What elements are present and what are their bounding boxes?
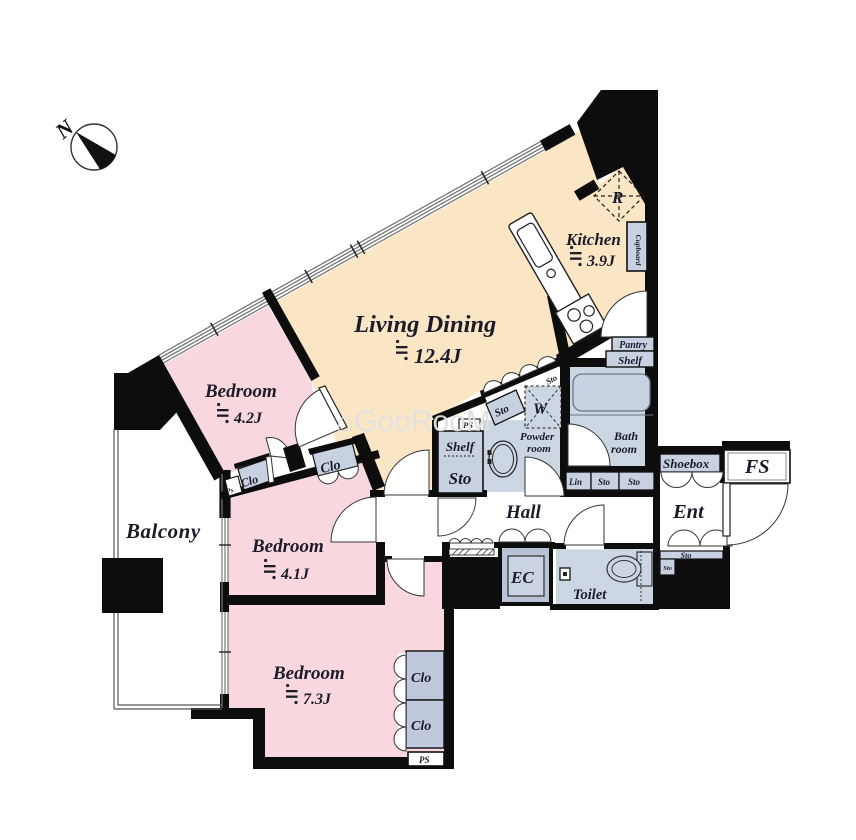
svg-text:Sto: Sto	[598, 477, 611, 487]
svg-text:Shelf: Shelf	[618, 355, 643, 367]
svg-text:Lin: Lin	[568, 477, 582, 487]
svg-text:EC: EC	[510, 568, 534, 587]
svg-text:PS: PS	[419, 755, 430, 765]
svg-text:12.4J: 12.4J	[414, 344, 463, 368]
svg-text:Pantry: Pantry	[619, 340, 647, 351]
svg-text:Ent: Ent	[672, 501, 705, 523]
svg-text:Shelf: Shelf	[446, 439, 476, 454]
svg-text:W: W	[533, 401, 549, 418]
svg-text:Cupboard: Cupboard	[634, 235, 643, 266]
svg-text:⌂GooRooM: ⌂GooRooM	[336, 405, 491, 438]
svg-text:Bath: Bath	[613, 429, 638, 443]
svg-text:Hall: Hall	[505, 502, 542, 523]
svg-text:Sto: Sto	[663, 565, 672, 572]
svg-text:Shoebox: Shoebox	[663, 456, 710, 471]
svg-text:Sto: Sto	[628, 477, 641, 487]
svg-text:Kitchen: Kitchen	[565, 230, 621, 249]
svg-text:Clo: Clo	[411, 671, 431, 686]
svg-text:R: R	[611, 188, 623, 207]
svg-text:Clo: Clo	[411, 719, 431, 734]
svg-text:7.3J: 7.3J	[303, 691, 332, 708]
svg-text:room: room	[527, 443, 551, 455]
svg-text:Sto: Sto	[449, 469, 472, 488]
svg-text:4.1J: 4.1J	[280, 566, 310, 583]
svg-text:4.2J: 4.2J	[233, 410, 263, 427]
svg-text:Toilet: Toilet	[573, 587, 607, 603]
svg-text:Bedroom: Bedroom	[251, 536, 324, 557]
svg-text:Living Dining: Living Dining	[353, 311, 496, 338]
svg-text:room: room	[611, 442, 637, 456]
svg-text:Sto: Sto	[681, 551, 692, 560]
svg-text:Bedroom: Bedroom	[204, 381, 277, 402]
svg-text:3.9J: 3.9J	[586, 253, 616, 270]
svg-text:Bedroom: Bedroom	[272, 663, 345, 684]
svg-text:FS: FS	[744, 456, 769, 478]
svg-text:Balcony: Balcony	[125, 519, 201, 543]
svg-text:Powder: Powder	[520, 431, 555, 443]
